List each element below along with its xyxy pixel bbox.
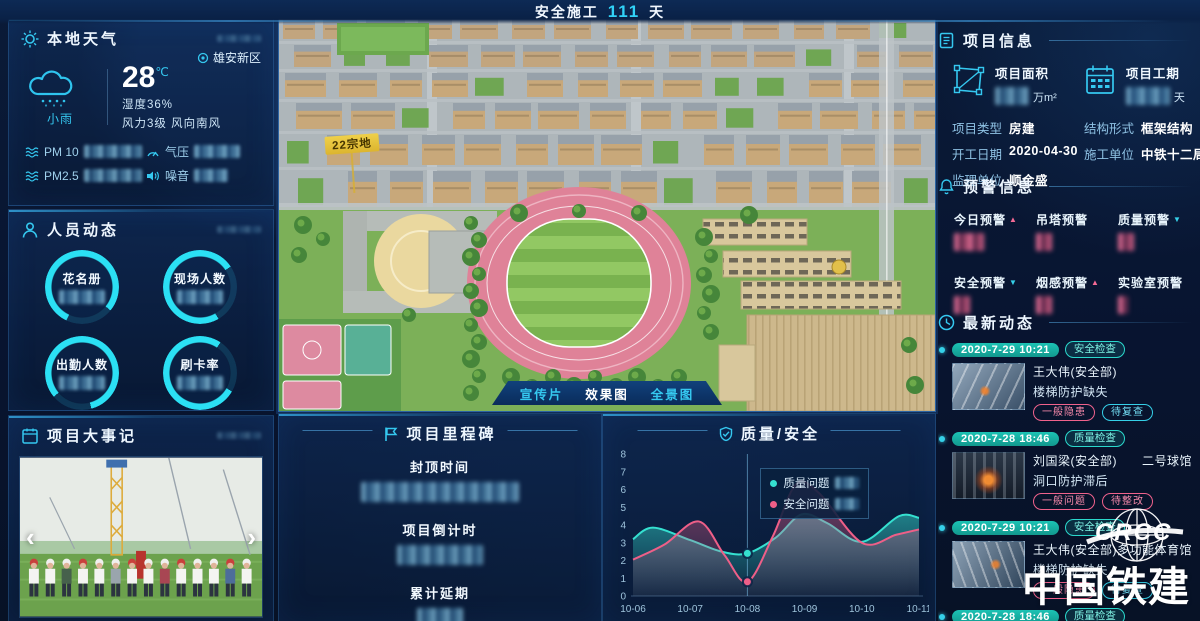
area-polygon-icon: [952, 63, 986, 97]
quality-safety-panel: 质量/安全 01234567810-0610-0710-0810-0910-10…: [602, 413, 936, 621]
events-panel: 项目大事记: [8, 415, 274, 621]
milestone-topping-time: 封顶时间: [279, 457, 601, 507]
news-item[interactable]: 2020-7-28 18:46质量检查 刘国梁(安全部): [938, 608, 1192, 621]
svg-text:10-09: 10-09: [792, 604, 818, 615]
warnings-panel: 预警信息 今日预警▲ 吊塔预警 质量预警▼ 安全预警▼ 烟感预警▲: [938, 176, 1192, 309]
svg-text:7: 7: [620, 467, 626, 478]
news-panel: 最新动态 2020-7-29 10:21安全检查 王大伟(安全部) 楼梯防护缺失…: [938, 312, 1192, 621]
metric-label: PM 10: [44, 145, 79, 159]
personnel-title-row: 人员动态: [9, 210, 273, 244]
temperature: 28℃: [122, 63, 221, 93]
title-tail: [1049, 322, 1192, 323]
ring-label: 刷卡率: [180, 356, 219, 373]
calendar-icon: [1083, 63, 1117, 97]
news-location: 二号球馆: [1142, 452, 1192, 469]
info-row-structure: 结构形式框架结构: [1084, 118, 1200, 137]
dashboard: 安全施工 111 天: [0, 0, 1200, 621]
trend-down-icon: ▼: [1009, 278, 1018, 287]
status-pill: 待复查: [1102, 582, 1153, 599]
warning-value-redacted: [1118, 233, 1134, 251]
tooltip-quality-row: 质量问题: [770, 475, 859, 491]
ring-value-redacted: [59, 376, 105, 390]
safety-days-unit: 天: [649, 4, 665, 20]
divider: [107, 69, 108, 125]
document-icon: [938, 32, 955, 49]
area-value-redacted: [995, 87, 1029, 105]
news-thumbnail: [952, 541, 1025, 588]
svg-text:2: 2: [620, 556, 626, 567]
svg-text:4: 4: [620, 521, 626, 532]
quality-safety-title-row: 质量/安全: [603, 423, 935, 444]
warnings-title-row: 预警信息: [938, 176, 1192, 197]
top-header: 安全施工 111 天: [0, 0, 1200, 24]
series-name: 安全问题: [783, 496, 829, 512]
ring-value-redacted: [177, 376, 223, 390]
wind: 风力3级 风向南风: [122, 115, 221, 131]
personnel-title: 人员动态: [47, 219, 119, 240]
info-row-start-date: 开工日期2020-04-30: [952, 144, 1078, 163]
news-tag: 质量检查: [1065, 608, 1125, 621]
ring-attendance-count: 出勤人数: [45, 336, 119, 410]
title-tail: [1049, 186, 1192, 187]
severity-pill: 一般隐患: [1033, 404, 1095, 421]
warning-value-redacted: [954, 233, 984, 251]
news-list: 2020-7-29 10:21安全检查 王大伟(安全部) 楼梯防护缺失 一般隐患…: [938, 341, 1192, 621]
svg-text:10-08: 10-08: [735, 604, 761, 615]
svg-text:6: 6: [620, 485, 626, 496]
svg-text:3: 3: [620, 538, 626, 549]
warning-crane: 吊塔预警: [1036, 211, 1110, 256]
person-icon: [21, 221, 39, 239]
ring-card-swipe-rate: 刷卡率: [163, 336, 237, 410]
rain-cloud-icon: [27, 68, 79, 108]
news-item[interactable]: 2020-7-29 10:21安全检查 王大伟(安全部)多功能体育馆 楼梯防护缺…: [938, 519, 1192, 599]
ring-value-redacted: [177, 290, 223, 304]
info-row-type: 项目类型房建: [952, 118, 1078, 137]
metric-value-redacted: [84, 145, 142, 158]
trend-up-icon: ▲: [1091, 278, 1100, 287]
series-name: 质量问题: [783, 475, 829, 491]
tab-promo-video[interactable]: 宣传片: [520, 384, 564, 403]
carousel-next-icon[interactable]: ›: [243, 520, 260, 554]
clock-icon: [938, 314, 955, 331]
location-chip[interactable]: 雄安新区: [197, 49, 261, 66]
news-person: 王大伟(安全部): [1033, 541, 1117, 558]
ring-label: 花名册: [62, 270, 101, 287]
news-item[interactable]: 2020-7-28 18:46质量检查 刘国梁(安全部)二号球馆 洞口防护滞后 …: [938, 430, 1192, 510]
trend-up-icon: ▲: [1009, 215, 1018, 224]
tab-render-view[interactable]: 效果图: [585, 384, 629, 403]
news-time: 2020-7-28 18:46: [952, 610, 1059, 621]
shield-check-icon: [718, 426, 734, 442]
severity-pill: 一般问题: [1033, 493, 1095, 510]
ring-onsite-count: 现场人数: [163, 250, 237, 324]
bell-icon: [938, 178, 955, 195]
milestone-value-redacted: [361, 482, 519, 502]
metric-noise: 噪音: [146, 167, 263, 184]
waves-icon: [25, 146, 39, 158]
tooltip-value-redacted: [835, 498, 859, 510]
news-time: 2020-7-29 10:21: [952, 343, 1059, 357]
project-info-panel: 项目信息 项目面积 万m²: [938, 30, 1192, 173]
safety-label: 安全施工: [535, 4, 599, 20]
metric-label: 噪音: [165, 167, 189, 184]
tab-panorama[interactable]: 全景图: [651, 384, 695, 403]
news-time: 2020-7-29 10:21: [952, 521, 1059, 535]
news-thumbnail: [952, 452, 1025, 499]
news-tag: 安全检查: [1065, 519, 1125, 536]
land-parcel-sign: 22宗地: [324, 133, 379, 155]
title-wing: [500, 430, 578, 438]
humidity: 湿度36%: [122, 96, 221, 112]
location-label: 雄安新区: [213, 49, 261, 66]
news-title: 最新动态: [963, 312, 1035, 333]
title-wing: [302, 430, 380, 438]
title-tail: [1049, 40, 1192, 41]
milestones-title-row: 项目里程碑: [279, 423, 601, 444]
weather-main: 小雨 28℃ 湿度36% 风力3级 风向南风: [27, 63, 265, 131]
news-person: 王大伟(安全部): [1033, 363, 1117, 380]
metric-label: 气压: [165, 143, 189, 160]
ring-label: 现场人数: [174, 270, 226, 287]
weather-condition: 小雨: [27, 110, 93, 127]
title-deco: [217, 432, 261, 439]
milestone-value-redacted: [397, 545, 483, 565]
duration-unit: 天: [1174, 89, 1185, 105]
news-desc: 楼梯防护缺失: [1033, 561, 1192, 578]
project-info-cards: 项目面积 万m² 项目工期 天: [952, 63, 1190, 105]
area-unit: 万m²: [1033, 89, 1057, 105]
weather-title-row: 本地天气: [9, 19, 273, 53]
news-desc: 楼梯防护缺失: [1033, 383, 1192, 400]
quality-safety-chart: 01234567810-0610-0710-0810-0910-1010-11 …: [609, 446, 931, 618]
news-thumbnail: [952, 363, 1025, 410]
metric-pressure: 气压: [146, 143, 263, 160]
safety-days-counter: 安全施工 111 天: [0, 2, 1200, 22]
warning-quality: 质量预警▼: [1118, 211, 1192, 256]
metric-pm25: PM2.5: [25, 167, 142, 184]
safety-days-value: 111: [605, 2, 644, 21]
weather-panel: 本地天气 雄安新区 小雨 28℃ 湿度36% 风力3级 风向南风: [8, 18, 274, 206]
svg-text:1: 1: [620, 574, 626, 585]
carousel-prev-icon[interactable]: ‹: [22, 520, 39, 554]
warning-value-redacted: [1036, 233, 1052, 251]
title-wing: [637, 430, 715, 438]
gauge-icon: [146, 146, 160, 158]
news-tag: 安全检查: [1065, 341, 1125, 358]
milestones-title: 项目里程碑: [406, 423, 496, 444]
personnel-panel: 人员动态 花名册 现场人数 出勤人数 刷卡率: [8, 209, 274, 411]
info-row-contractor: 施工单位中铁十二局: [1084, 144, 1200, 163]
weather-metrics: PM 10 气压 PM2.5 噪音: [25, 143, 263, 184]
news-tag: 质量检查: [1065, 430, 1125, 447]
title-wing: [823, 430, 901, 438]
aerial-render: 22宗地 宣传片 效果图 全景图: [278, 14, 936, 412]
svg-text:10-06: 10-06: [620, 604, 646, 615]
quality-safety-title: 质量/安全: [741, 423, 820, 444]
group-photo: [20, 457, 262, 617]
metric-value-redacted: [84, 169, 142, 182]
flag-icon: [383, 426, 399, 442]
severity-pill: 一般隐患: [1033, 582, 1095, 599]
warnings-grid: 今日预警▲ 吊塔预警 质量预警▼ 安全预警▼ 烟感预警▲ 实验室预警: [954, 211, 1192, 319]
trend-down-icon: ▼: [1173, 215, 1182, 224]
news-location: 多功能体育馆: [1117, 541, 1192, 558]
events-title-row: 项目大事记: [9, 416, 273, 450]
milestone-value-redacted: [417, 608, 463, 621]
status-pill: 待整改: [1102, 493, 1153, 510]
news-item[interactable]: 2020-7-29 10:21安全检查 王大伟(安全部) 楼梯防护缺失 一般隐患…: [938, 341, 1192, 421]
milestones-panel: 项目里程碑 封顶时间 项目倒计时 累计延期: [278, 413, 602, 621]
sports-courts: [279, 319, 401, 411]
events-title: 项目大事记: [47, 425, 137, 446]
metric-value-redacted: [194, 145, 240, 158]
milestone-label: 封顶时间: [279, 457, 601, 476]
news-desc: 洞口防护滞后: [1033, 472, 1192, 489]
sun-icon: [21, 30, 39, 48]
milestone-delay: 累计延期: [279, 583, 601, 621]
render-view-tabs: 宣传片 效果图 全景图: [492, 381, 722, 405]
ring-value-redacted: [59, 290, 105, 304]
area-label: 项目面积: [995, 63, 1057, 82]
speaker-icon: [146, 170, 160, 182]
project-info-title-row: 项目信息: [938, 30, 1192, 51]
quality-dot-icon: [770, 480, 777, 487]
calendar-note-icon: [21, 427, 39, 445]
news-person: 刘国梁(安全部): [1033, 452, 1117, 469]
location-pin-icon: [197, 52, 209, 64]
title-deco: [217, 226, 261, 233]
metric-pm10: PM 10: [25, 143, 142, 160]
svg-text:10-07: 10-07: [677, 604, 703, 615]
milestone-label: 累计延期: [279, 583, 601, 602]
svg-text:5: 5: [620, 503, 626, 514]
duration-value-redacted: [1126, 87, 1170, 105]
warning-today: 今日预警▲: [954, 211, 1028, 256]
news-time: 2020-7-28 18:46: [952, 432, 1059, 446]
project-duration-card: 项目工期 天: [1083, 63, 1185, 105]
project-area-card: 项目面积 万m²: [952, 63, 1057, 105]
events-photo-carousel: ‹ ›: [19, 456, 263, 618]
tooltip-value-redacted: [835, 477, 859, 489]
waves-icon: [25, 170, 39, 182]
metric-label: PM2.5: [44, 169, 79, 183]
weather-title: 本地天气: [47, 28, 119, 49]
svg-text:8: 8: [620, 450, 626, 461]
warnings-title: 预警信息: [963, 176, 1035, 197]
metric-value-redacted: [194, 169, 228, 182]
chart-tooltip: 质量问题 安全问题: [760, 468, 869, 519]
news-title-row: 最新动态: [938, 312, 1192, 333]
project-info-title: 项目信息: [963, 30, 1035, 51]
milestone-label: 项目倒计时: [279, 520, 601, 539]
svg-text:10-11: 10-11: [907, 604, 929, 615]
safety-dot-icon: [770, 501, 777, 508]
svg-text:10-10: 10-10: [849, 604, 875, 615]
duration-label: 项目工期: [1126, 63, 1185, 82]
status-pill: 待复查: [1102, 404, 1153, 421]
svg-text:0: 0: [620, 592, 626, 603]
title-deco: [217, 35, 261, 42]
milestone-countdown: 项目倒计时: [279, 520, 601, 570]
personnel-rings: 花名册 现场人数 出勤人数 刷卡率: [37, 250, 245, 410]
ring-label: 出勤人数: [56, 356, 108, 373]
aerial-render-scene: [279, 15, 935, 411]
tooltip-safety-row: 安全问题: [770, 496, 859, 512]
ring-roster: 花名册: [45, 250, 119, 324]
